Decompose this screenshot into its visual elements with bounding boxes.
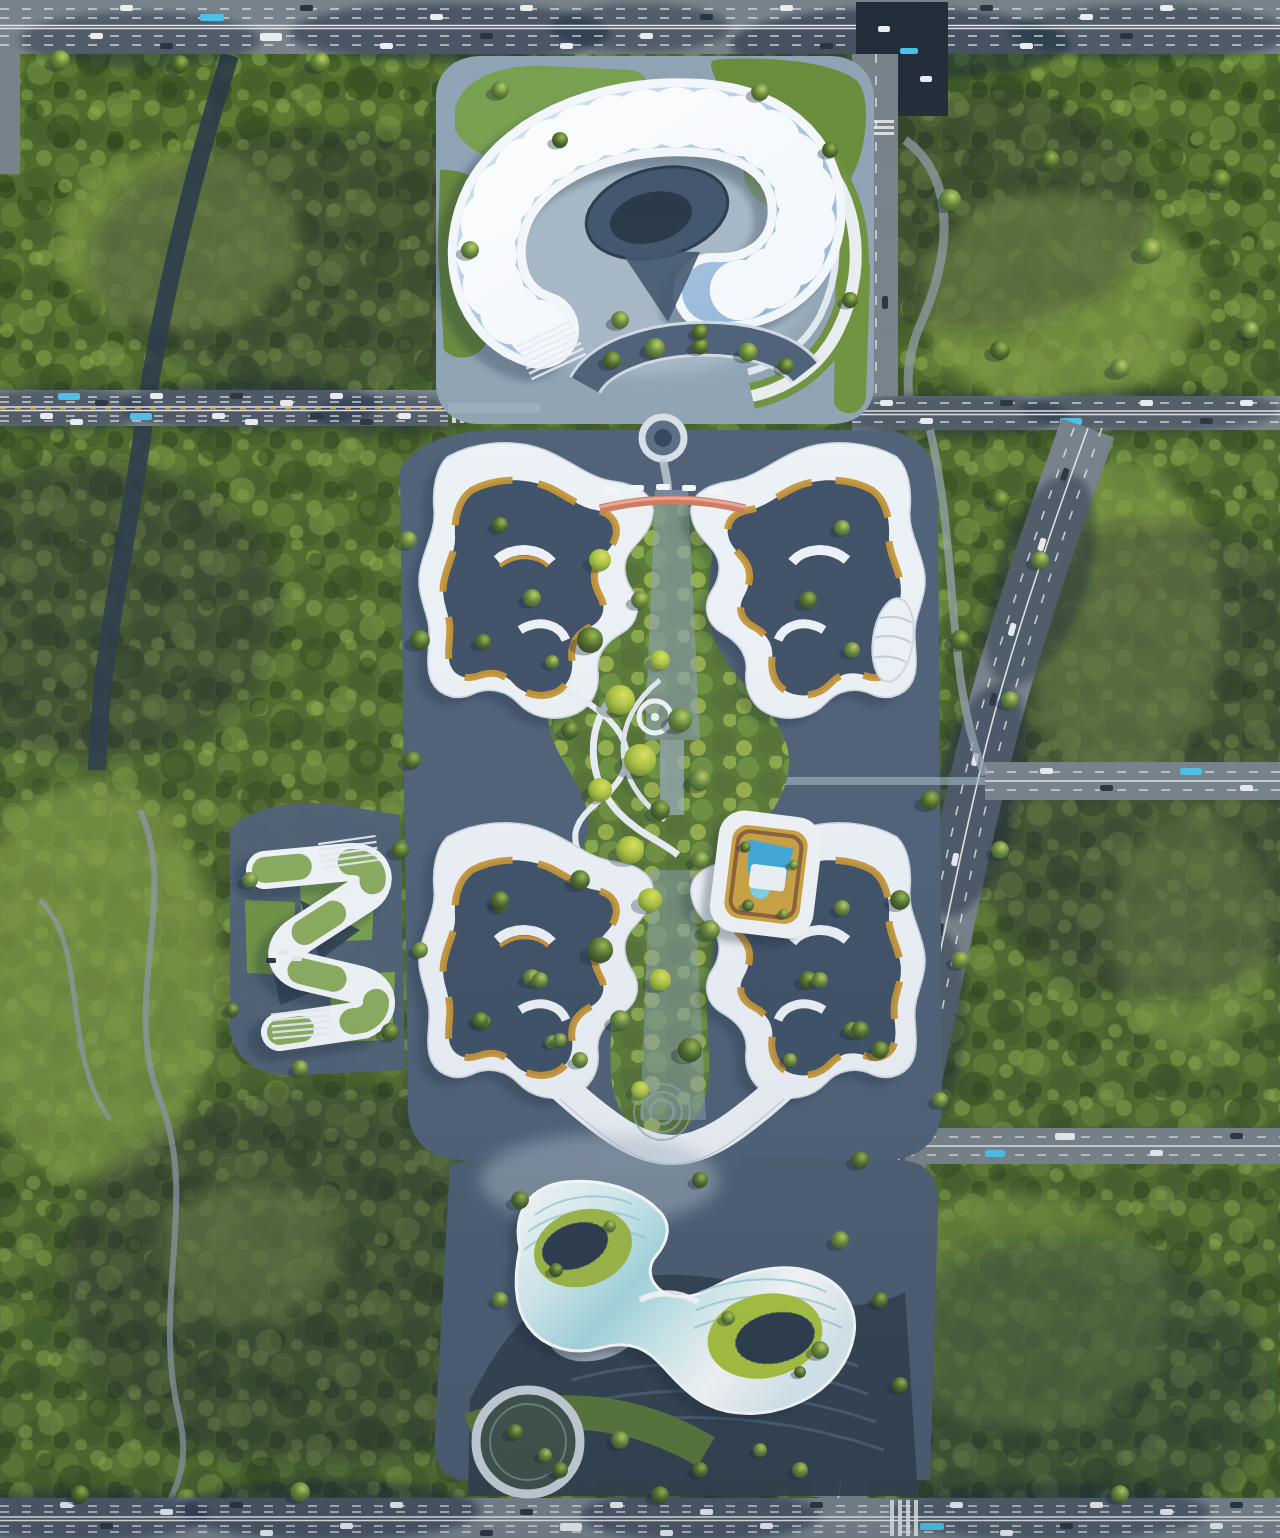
masterplan-svg [0,0,1280,1538]
atmosphere-grade [0,0,1280,1538]
aerial-masterplan-render [0,0,1280,1538]
